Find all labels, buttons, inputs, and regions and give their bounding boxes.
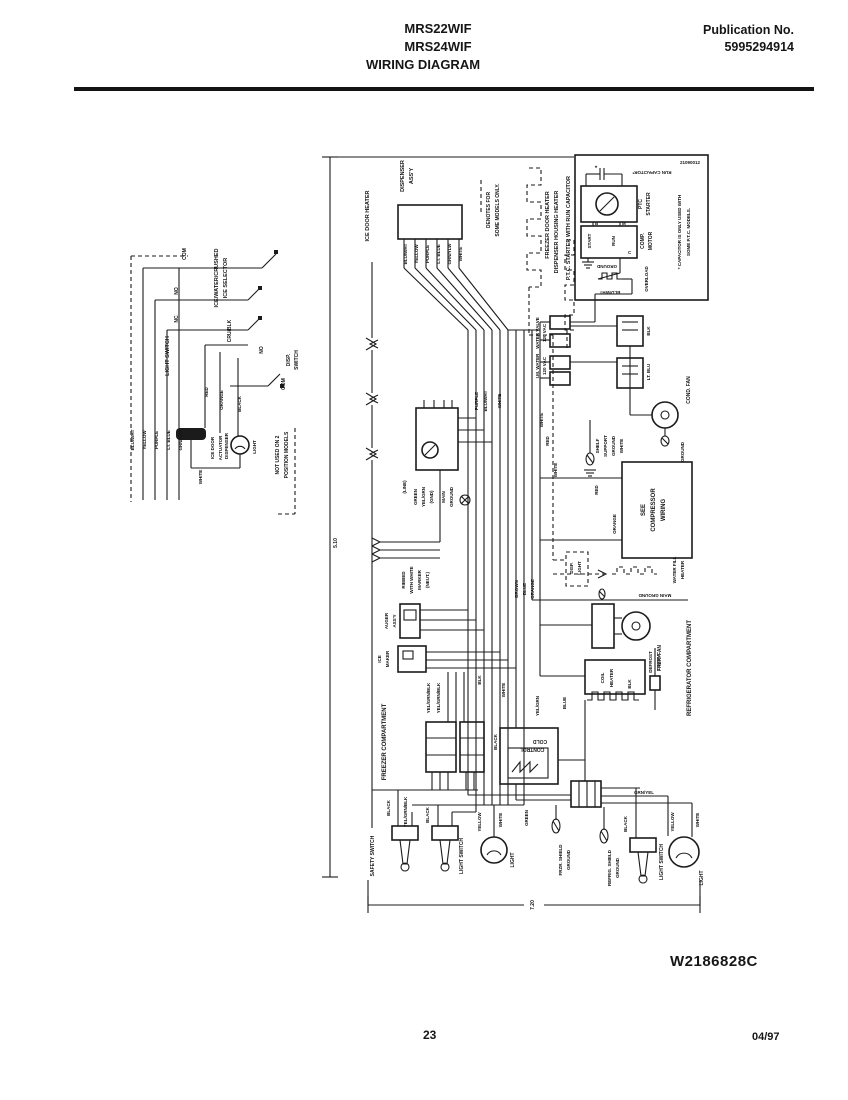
label-ygb-1: YEL/GRN/BLK: [426, 682, 431, 713]
label-blk-3: BLK: [627, 679, 632, 689]
label-wire-lt-blue: LT. BLUE: [166, 430, 171, 449]
label-pin-lt-blue: LT. BLUE: [436, 244, 441, 263]
label-denotes-2: SOME MODELS ONLY.: [495, 183, 501, 237]
label-disp-bulb-1: DISPENSER: [224, 432, 229, 459]
label-wire-c: BLK: [646, 326, 651, 336]
label-frzr-shield-2: GROUND: [566, 849, 571, 870]
label-white-5: WHITE: [553, 463, 558, 478]
safety-switch: SAFETY SWITCH BLACK YEL/GRN/BLK: [370, 790, 418, 876]
label-light-switch-ref: LIGHT SWITCH: [659, 844, 665, 880]
label-denotes-1: DENOTES FOR: [486, 192, 492, 229]
label-comp-2: MOTOR: [648, 231, 654, 250]
label-red-2: RED: [545, 436, 550, 446]
label-freezer-compartment: FREEZER COMPARTMENT: [382, 703, 388, 780]
label-yellow-2: YELLOW: [477, 812, 482, 832]
coil-heater: COIL HEATER BLK: [585, 660, 645, 700]
label-ice-door-heater: ICE DOOR HEATER: [365, 191, 371, 242]
harness-connectors: [372, 722, 484, 790]
label-ice-maker-2: MAKER: [385, 650, 390, 667]
label-wire-blu-wht: BLU/WHT: [130, 429, 135, 450]
label-shelf-3: GROUND: [611, 435, 616, 456]
label-nc-1: NC: [174, 315, 180, 323]
condenser-fan: COND. FAN GROUND: [630, 346, 692, 462]
label-water-fill-1: WATER FILL: [672, 556, 677, 583]
label-overload: OVERLOAD: [644, 266, 649, 292]
label-disp-sw-2: SWITCH: [294, 350, 300, 370]
wiring-diagram-svg: 5.10 7.20: [0, 0, 848, 1100]
defrost-timer: PURPLE BLU/WHT WHITE WHITE RED WHITE (LI…: [402, 390, 558, 507]
label-black-2: BLACK: [493, 733, 498, 749]
label-see-3: WIRING: [661, 499, 667, 522]
defrost-thermostat: DEFROST THERM.: [648, 648, 661, 710]
label-disp-sw-1: DISP.: [286, 353, 292, 366]
label-ribbed-3: MARKER: [417, 569, 422, 589]
label-coil-1: COIL: [600, 672, 605, 683]
label-no-1: NO: [174, 287, 180, 295]
label-frzr-shield-1: FRZR. SHIELD: [558, 844, 563, 876]
shield-grounds: FRZR. SHIELD GROUND REFRIG. SHIELD GROUN…: [552, 805, 620, 886]
label-ribbed-2: WITH WHITE: [409, 566, 414, 593]
label-disp-housing-heater: DISPENSER HOUSING HEATER: [554, 191, 560, 274]
label-ptc-1: PTC: [638, 199, 644, 209]
label-not-used-1: NOT USED ON 2: [275, 435, 281, 474]
label-cold: COLD: [533, 738, 548, 744]
label-com-1: COM: [182, 248, 188, 260]
cold-control: COLD CONTROL BLACK YEL/GRN BLUE: [493, 696, 585, 784]
label-cap-note-2: SOME P.T.C. MODELS.: [686, 208, 691, 256]
label-pin-purple: PURPLE: [425, 245, 430, 263]
label-light-2: LIGHT: [699, 871, 705, 886]
label-line: (LINE): [402, 480, 407, 494]
label-defrost-therm-2: THERM.: [656, 653, 661, 670]
label-orange-2: ORANGE: [612, 514, 617, 534]
refrigerator-light-switch: LIGHT SWITCH BLACK: [623, 788, 665, 883]
label-water-valve-2: 120 VAC: [542, 323, 547, 342]
label-see-2: COMPRESSOR: [651, 488, 657, 532]
label-run-capacitor: RUN CAPACITOR*: [632, 170, 671, 175]
label-water-fill-2: HEATER: [680, 560, 685, 579]
label-wire-yellow: YELLOW: [142, 430, 147, 450]
denotes-legend: DENOTES FOR SOME MODELS ONLY.: [481, 180, 501, 237]
label-pin-white: WHITE: [458, 247, 463, 262]
label-main-1: MAIN: [441, 491, 446, 503]
label-ground-2: GROUND: [449, 486, 454, 507]
label-ground-ptc: GROUND: [596, 264, 617, 269]
label-not-used-2: POSITION MODELS: [284, 431, 290, 478]
label-cap-note-1: * CAPACITOR IS ONLY USED WITH: [677, 195, 682, 270]
label-blu-wht-ptc: BLU/WHT: [599, 290, 620, 295]
dim-width-label: 7.20: [530, 900, 536, 910]
shelf-support-ground: SHELF SUPPORT GROUND WHITE: [584, 420, 624, 476]
label-selector-1: ICE/WATER/CRUSHED: [214, 249, 220, 308]
main-ground-bus: MAIN GROUND: [560, 589, 688, 600]
label-pin-grn-ylw: GRN/YLW: [447, 243, 452, 265]
label-red-1: RED: [204, 387, 209, 397]
label-blk-2: BLK: [477, 675, 482, 685]
label-white-6: WHITE: [501, 683, 506, 698]
label-ygb-3: YEL/GRN/BLK: [403, 796, 408, 827]
auger-assembly: AUGER ASS'Y: [384, 604, 484, 638]
label-refrigerator-compartment: REFRIGERATOR COMPARTMENT: [687, 620, 693, 716]
document-number: W2186828C: [670, 953, 758, 970]
label-im-water-1: I.M. WATER: [535, 353, 540, 378]
label-im-water-2: 120 VAC: [542, 356, 547, 375]
label-refrig-shield-1: REFRIG. SHIELD: [607, 849, 612, 886]
page-number: 23: [423, 1028, 436, 1042]
label-yel-grn-2: YEL/GRN: [535, 696, 540, 716]
label-shelf-2: SUPPORT: [603, 435, 608, 457]
label-red-3: RED: [594, 485, 599, 495]
label-ptc-2: STARTER: [646, 192, 652, 216]
label-main-ground: MAIN GROUND: [638, 593, 671, 598]
label-cond-fan: COND. FAN: [686, 376, 692, 404]
label-wire-purple: PURPLE: [154, 431, 159, 449]
label-wire-white: WHITE: [198, 470, 203, 485]
label-com-2: COM: [281, 378, 287, 390]
refrigerator-light: YELLOW WHITE LIGHT: [668, 796, 705, 886]
label-brown: BROWN: [514, 580, 519, 598]
label-terminal-c: C: [628, 250, 632, 255]
label-yellow-3: YELLOW: [670, 812, 675, 832]
label-disp-light-2: LIGHT: [577, 561, 582, 575]
label-control: CONTROL: [520, 746, 545, 752]
label-blue-2: BLUE: [562, 697, 567, 709]
dispenser-light-dashed: DISP. LIGHT: [553, 552, 588, 586]
label-blue-1: BLUE: [522, 583, 527, 595]
water-valves: WATER VALVE 120 VAC I.M. WATER 120 VAC B…: [535, 316, 651, 388]
label-white-9: WHITE: [695, 813, 700, 828]
label-ground-4: GROUND: [680, 441, 685, 462]
label-no-2: NO: [259, 346, 265, 354]
label-green-2: GREEN: [524, 810, 529, 826]
label-selector-2: ICE SELECTOR: [223, 258, 229, 299]
label-gnd: (GND): [429, 490, 434, 503]
label-wire-d: LT. BLU: [646, 364, 651, 380]
label-black-4: BLACK: [425, 806, 430, 822]
label-grn-yel-2: GRN/YEL: [634, 790, 654, 795]
label-yel-grn-1: YEL/GRN: [421, 487, 426, 507]
label-ice-door-actuator-1: ICE DOOR: [210, 436, 215, 459]
label-disp-light-1: DISP.: [569, 562, 574, 573]
label-disp-assy-2: ASS'Y: [409, 168, 415, 185]
dim-height-label: 5.10: [333, 538, 339, 548]
label-defrost-therm-1: DEFROST: [648, 651, 653, 673]
label-ice-maker-1: ICE: [377, 655, 382, 663]
freezer-light: YELLOW WHITE LIGHT GREEN: [477, 805, 529, 868]
label-cru-blk: CRU/BLK: [227, 319, 233, 342]
label-part-number: 21090012: [680, 160, 701, 165]
manual-page: MRS22WIF MRS24WIF WIRING DIAGRAM Publica…: [0, 0, 848, 1100]
label-black-3: BLACK: [386, 799, 391, 815]
label-freezer-door-heater: FREEZER DOOR HEATER: [545, 191, 551, 258]
compressor-box: SEE COMPRESSOR WIRING RED ORANGE: [594, 462, 692, 558]
label-ice-door-actuator-2: ACTUATOR: [218, 435, 223, 461]
label-disp-bulb-2: LIGHT: [252, 440, 257, 454]
freezer-light-switch: LIGHT SWITCH BLACK: [425, 805, 476, 874]
label-ribbed-4: (NEUT.): [425, 572, 430, 588]
label-orange-3: ORANGE: [530, 579, 535, 599]
label-water-valve-1: WATER VALVE: [535, 317, 540, 349]
label-pin-yellow: YELLOW: [414, 244, 419, 264]
label-start: START: [587, 233, 592, 248]
label-coil-2: HEATER: [609, 668, 614, 687]
label-white-8: WHITE: [498, 813, 503, 828]
label-refrig-shield-2: GROUND: [615, 857, 620, 878]
label-asterisk: *: [595, 166, 598, 172]
door-connector: GRN/YEL: [571, 781, 692, 807]
label-pin-blu-wht: BLU/WHT: [403, 243, 408, 264]
label-ygb-2: YEL/GRN/BLK: [436, 682, 441, 713]
ice-door-heater: ICE DOOR HEATER: [365, 191, 378, 828]
revision-date: 04/97: [752, 1031, 780, 1043]
label-ribbed-1: RIBBED: [401, 571, 406, 589]
label-black-5: BLACK: [623, 815, 628, 831]
dispenser-assembly: DISPENSER ASS'Y BLU/WHT YELLOW PURPLE LT…: [398, 160, 508, 330]
inset-selector: ICE/WATER/CRUSHED ICE SELECTOR COM NO NC…: [130, 248, 300, 514]
label-terminal-m: M: [622, 221, 626, 226]
label-auger-2: ASS'Y: [392, 614, 397, 627]
label-comp-1: COMP.: [640, 233, 646, 249]
label-orange-1: ORANGE: [219, 390, 224, 410]
label-safety-switch: SAFETY SWITCH: [370, 835, 376, 876]
label-green-1: GREEN: [413, 489, 418, 505]
label-run: RUN: [611, 236, 616, 246]
ptc-starter-inset: P.T.C. STARTER WITH RUN CAPACITOR 210900…: [566, 155, 708, 322]
label-light-1: LIGHT: [510, 853, 516, 868]
label-white-10: WHITE: [619, 439, 624, 454]
label-auger-1: AUGER: [384, 612, 389, 629]
label-light-switch-inset: LIGHT SWITCH: [165, 336, 171, 376]
ice-maker: ICE MAKER YEL/GRN/BLK YEL/GRN/BLK: [377, 646, 516, 722]
label-black-1: BLACK: [237, 395, 242, 411]
label-shelf-1: SHELF: [595, 438, 600, 453]
label-wire-grn-ylw: GRN/YLW: [178, 429, 183, 451]
label-see-1: SEE: [641, 504, 647, 516]
label-ptc-title: P.T.C. STARTER WITH RUN CAPACITOR: [566, 176, 572, 280]
label-light-switch-frz: LIGHT SWITCH: [459, 838, 465, 874]
label-disp-assy-1: DISPENSER: [400, 160, 406, 192]
